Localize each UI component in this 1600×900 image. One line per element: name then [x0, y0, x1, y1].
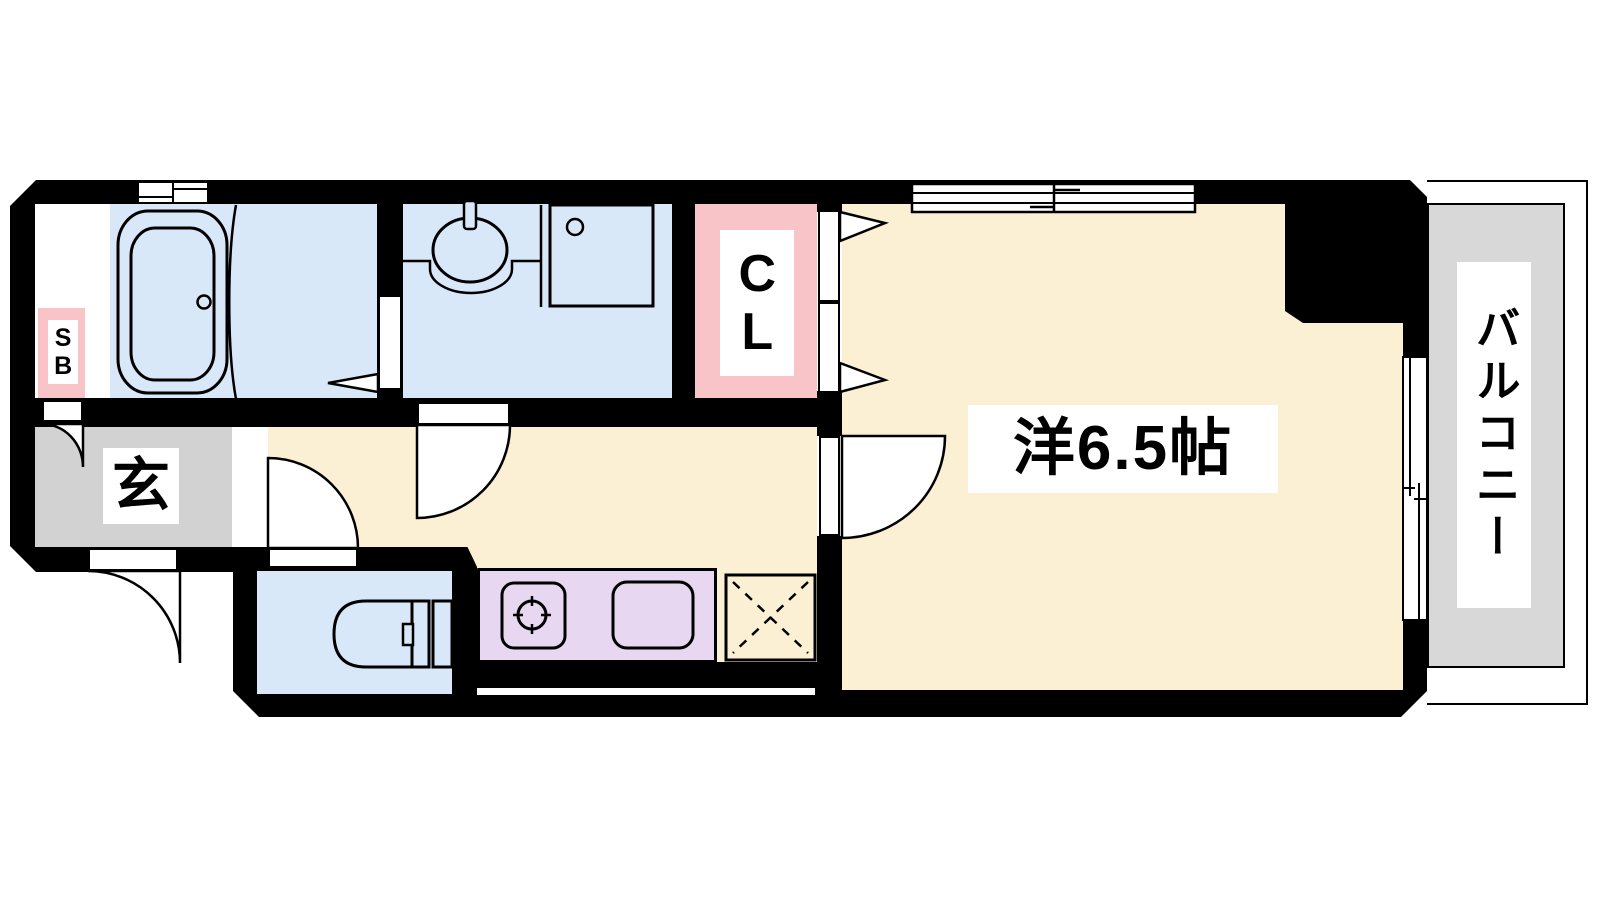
room-corridor	[255, 427, 817, 548]
wall-washroom-closet	[672, 204, 695, 398]
closet-door-leaf-top	[818, 210, 840, 302]
entrance-step-strip	[232, 427, 268, 547]
wall-room-bottom	[842, 690, 1427, 717]
room-door-opening	[819, 436, 840, 536]
shoebox-door-opening	[42, 400, 83, 422]
wall-toilet-right	[452, 547, 477, 717]
label-shoebox: SB	[48, 320, 78, 384]
room-toilet	[257, 571, 452, 694]
wall-top	[10, 180, 1285, 204]
front-door-opening	[88, 548, 178, 571]
label-western-room: 洋6.5帖	[968, 405, 1278, 493]
wall-right-top	[1403, 323, 1427, 360]
wall-right-bottom	[1403, 620, 1427, 690]
toilet-door-opening	[268, 548, 358, 568]
label-closet: CL	[720, 230, 794, 376]
kitchen-wall-stripe	[477, 688, 815, 695]
label-entrance: 玄	[103, 448, 179, 524]
front-door-swing	[88, 571, 180, 663]
wall-pillar-top-right	[1285, 180, 1427, 323]
kitchen-counter	[477, 568, 717, 663]
wall-left	[10, 180, 35, 572]
bath-door-opening	[378, 295, 402, 390]
label-balcony: バルコニー	[1457, 262, 1531, 608]
floor-plan: 洋6.5帖 CL SB 玄 バルコニー	[0, 0, 1600, 900]
room-bathroom	[110, 204, 377, 400]
closet-door-leaf-bottom	[818, 302, 840, 393]
wall-toilet-bottom	[233, 694, 477, 717]
room-washroom	[403, 204, 672, 400]
washroom-door-opening	[417, 402, 510, 425]
wall-closet-stub-bottom	[817, 391, 842, 436]
